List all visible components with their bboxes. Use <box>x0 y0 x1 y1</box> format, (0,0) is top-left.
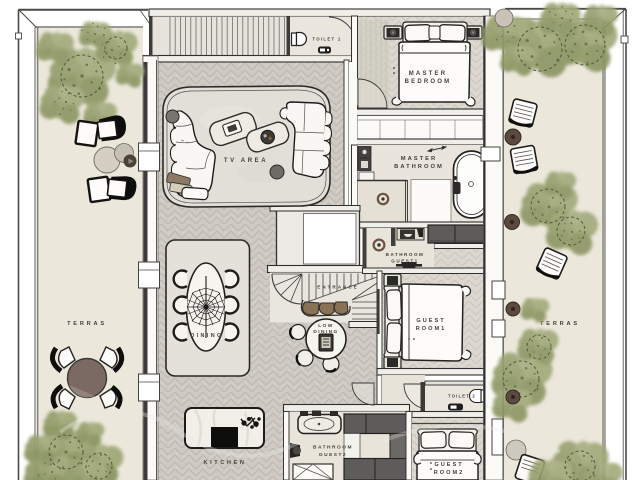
svg-text:BEDROOM: BEDROOM <box>405 79 452 85</box>
svg-text:TOILET 1: TOILET 1 <box>312 37 341 42</box>
svg-text:ENTRANCE: ENTRANCE <box>317 285 359 290</box>
svg-text:BATHROOM: BATHROOM <box>394 164 444 170</box>
svg-text:KITCHEN: KITCHEN <box>203 460 246 466</box>
svg-text:LOW: LOW <box>318 323 333 329</box>
svg-text:TOILET 2: TOILET 2 <box>448 394 476 399</box>
svg-text:TV AREA: TV AREA <box>224 158 268 164</box>
svg-text:GUEST: GUEST <box>416 318 445 324</box>
svg-text:BATHROOM: BATHROOM <box>386 252 425 257</box>
svg-text:GUEST: GUEST <box>434 462 463 468</box>
svg-text:DINING: DINING <box>190 333 223 339</box>
svg-text:ROOM1: ROOM1 <box>416 326 447 332</box>
svg-text:MASTER: MASTER <box>401 156 437 162</box>
svg-text:BATHROOM: BATHROOM <box>313 445 353 451</box>
svg-text:TERRAS: TERRAS <box>67 321 107 327</box>
svg-text:ROOM2: ROOM2 <box>434 470 465 476</box>
svg-text:TERRAS: TERRAS <box>540 321 580 327</box>
svg-text:GUEST2: GUEST2 <box>319 452 347 458</box>
svg-text:DINING: DINING <box>313 329 338 335</box>
svg-text:GUEST1: GUEST1 <box>391 259 418 264</box>
svg-text:MASTER: MASTER <box>409 71 448 77</box>
